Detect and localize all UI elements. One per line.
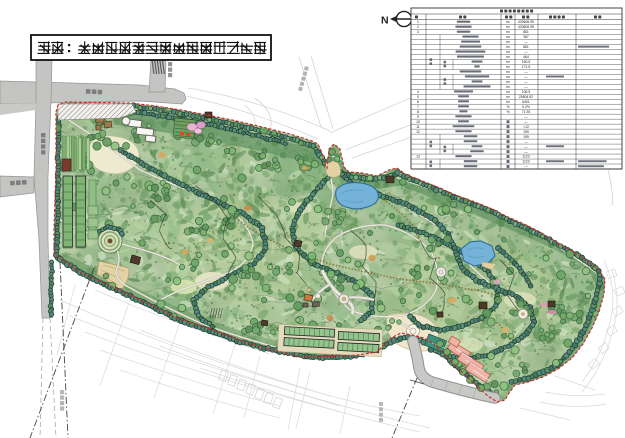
svg-text:%: %	[506, 105, 509, 109]
svg-text:367: 367	[523, 35, 529, 39]
svg-text:4: 4	[417, 90, 419, 94]
svg-text:11: 11	[416, 125, 420, 129]
svg-text:433606.95: 433606.95	[518, 25, 534, 29]
svg-text:%: %	[506, 110, 509, 114]
svg-text:10: 10	[416, 120, 420, 124]
svg-text:199: 199	[523, 130, 529, 134]
svg-text:0.2%: 0.2%	[522, 105, 530, 109]
svg-text:8: 8	[417, 110, 419, 114]
svg-text:464: 464	[523, 55, 529, 59]
svg-text:1123: 1123	[522, 160, 529, 164]
svg-text:433606.95: 433606.95	[518, 20, 534, 24]
svg-text:199: 199	[523, 135, 529, 139]
svg-text:3: 3	[417, 30, 419, 34]
svg-text:1: 1	[417, 20, 419, 24]
svg-text:<12: <12	[523, 125, 529, 129]
svg-text:160.5: 160.5	[522, 60, 531, 64]
svg-text:2: 2	[417, 25, 419, 29]
svg-text:12: 12	[416, 130, 420, 134]
svg-text:6401: 6401	[522, 100, 530, 104]
svg-text:1123: 1123	[522, 155, 529, 159]
svg-text:861: 861	[523, 45, 529, 49]
svg-text:6: 6	[417, 100, 419, 104]
svg-text:5: 5	[417, 95, 419, 99]
svg-text:25804.92: 25804.92	[519, 95, 533, 99]
svg-text:13: 13	[416, 155, 420, 159]
svg-text:106.5: 106.5	[522, 90, 531, 94]
svg-text:171.5: 171.5	[522, 65, 531, 69]
svg-text:9: 9	[417, 115, 419, 119]
svg-text:7: 7	[417, 105, 419, 109]
svg-text:N: N	[381, 15, 389, 27]
svg-text:861: 861	[523, 30, 529, 34]
svg-text:71.93: 71.93	[522, 110, 531, 114]
